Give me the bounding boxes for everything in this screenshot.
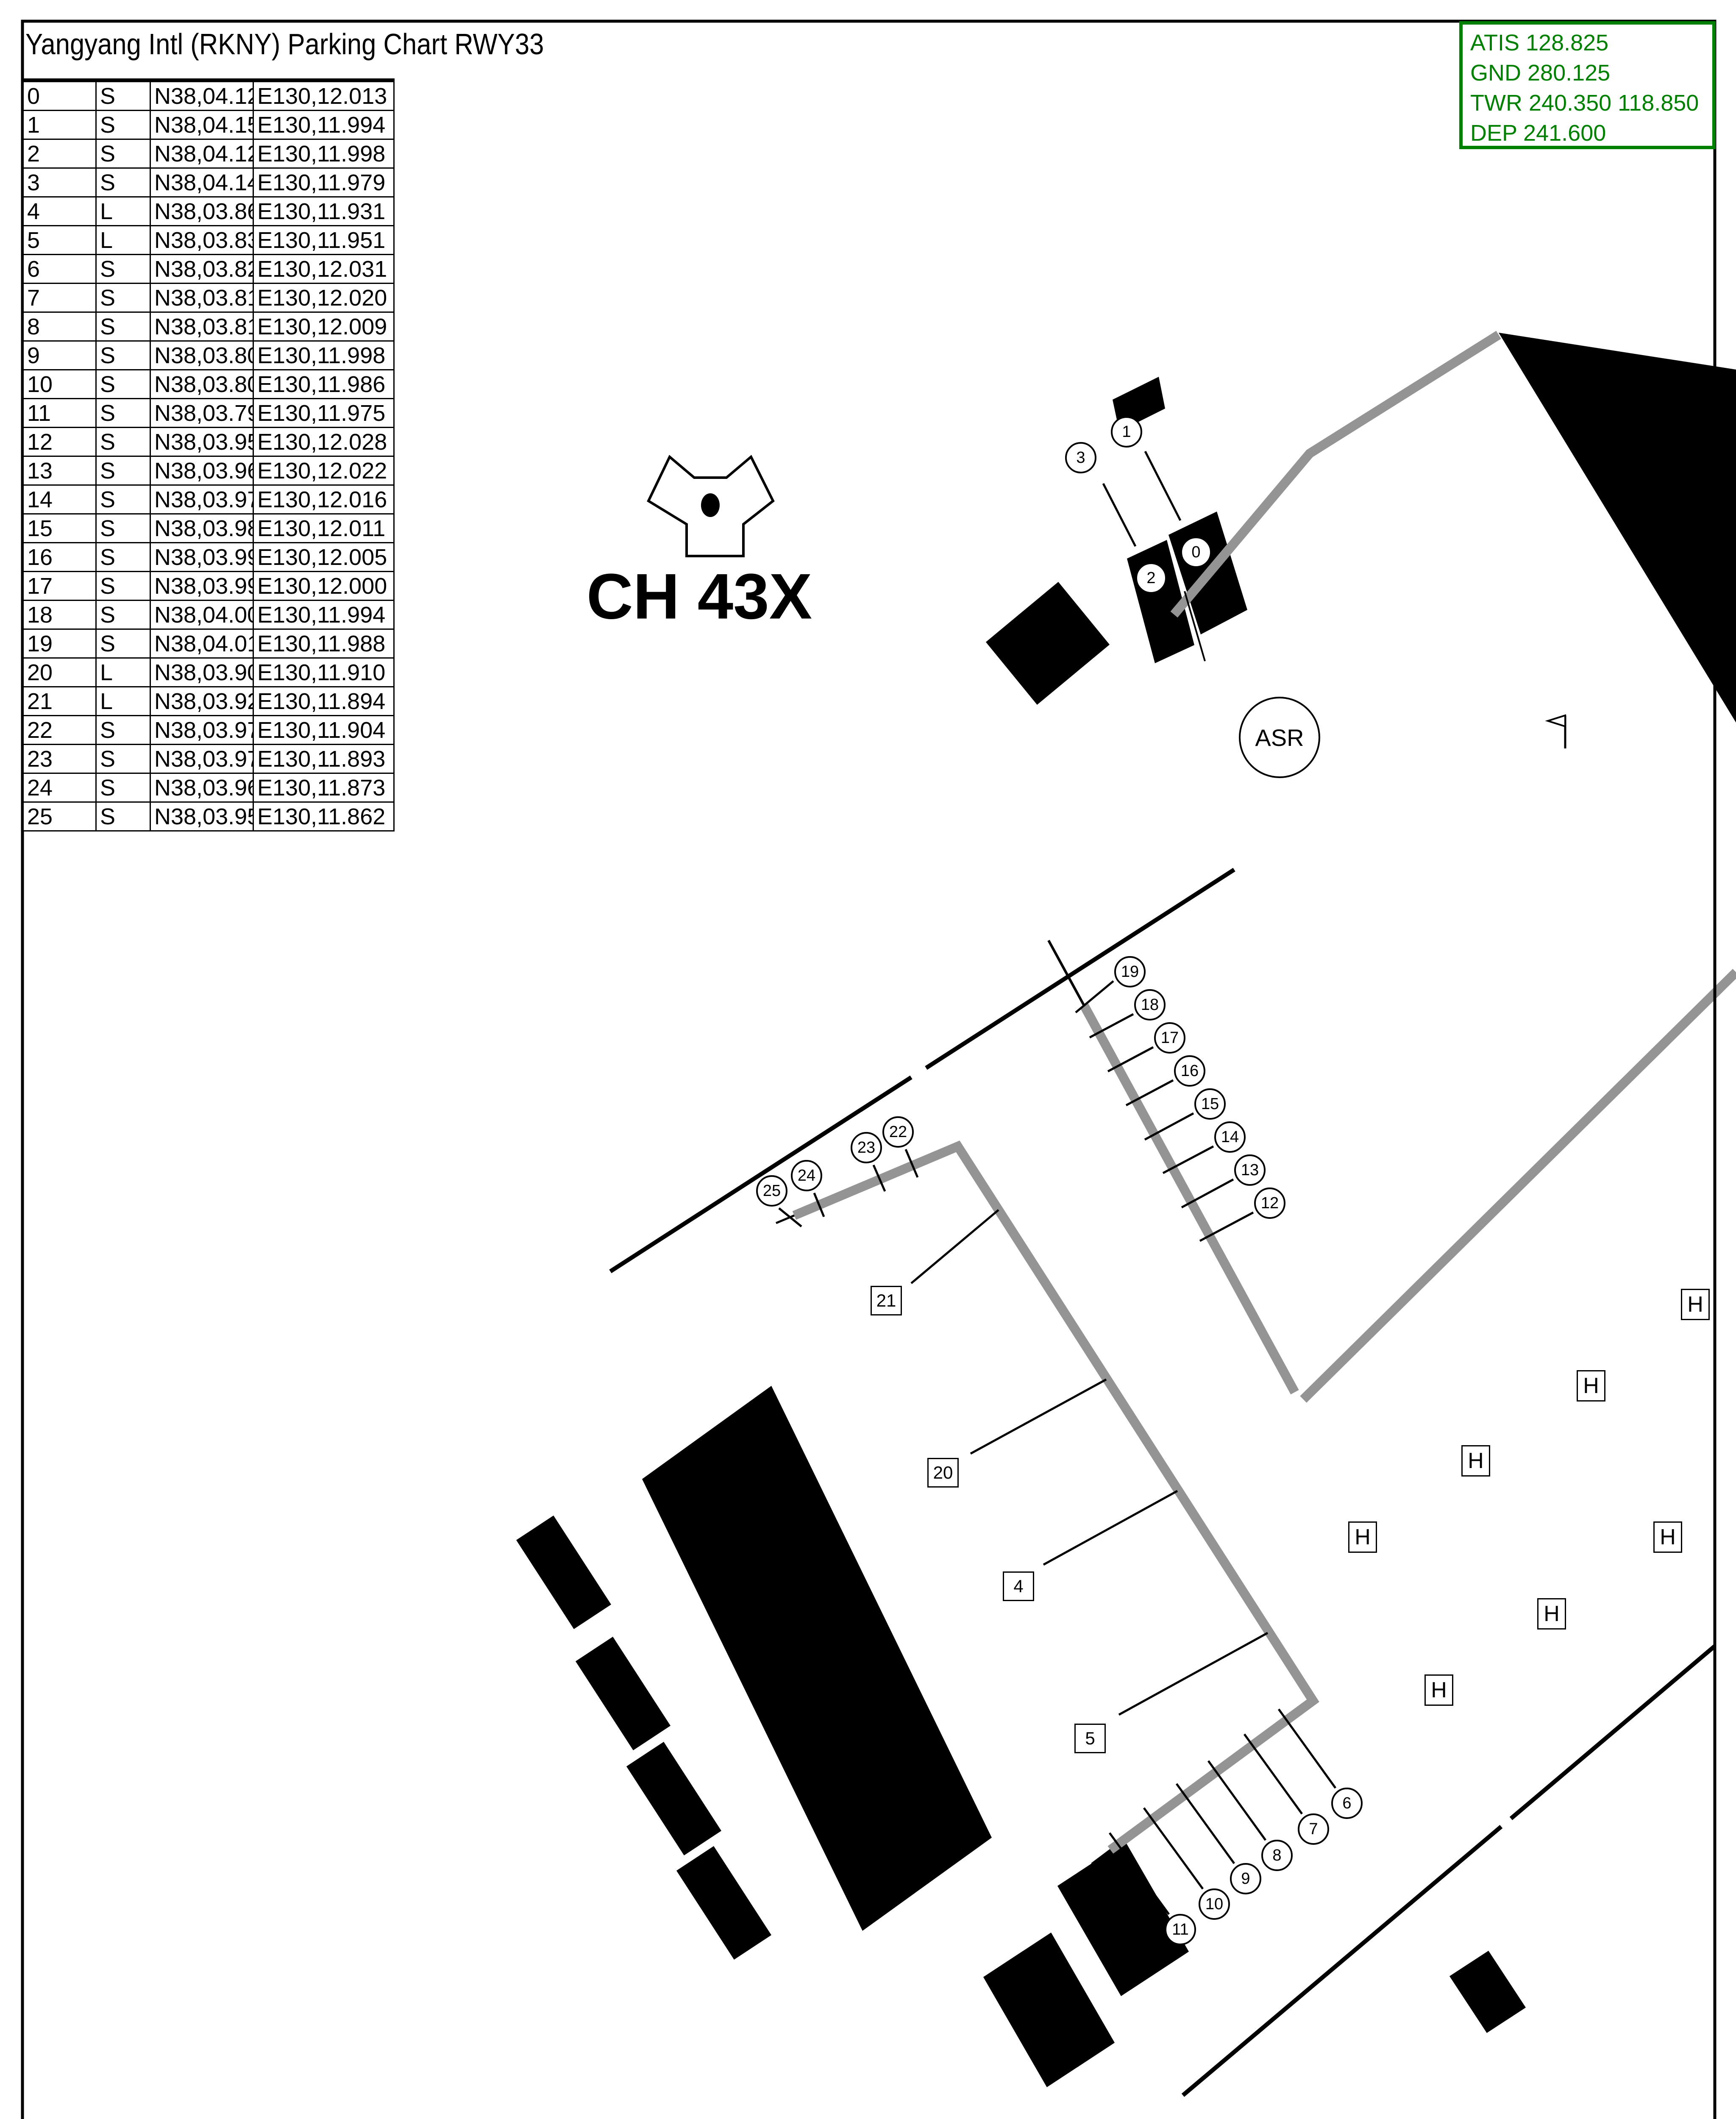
building (516, 1516, 611, 1629)
departure-frequency: DEP 241.600 (1470, 118, 1712, 148)
table-cell: E130,12.000 (253, 572, 394, 601)
table-row: 15SN38,03.982E130,12.011 (23, 514, 394, 543)
table-cell: N38,04.149 (150, 168, 253, 197)
table-cell: N38,04.016 (150, 629, 253, 658)
helipad-marker: H (1653, 1521, 1682, 1553)
table-row: 6SN38,03.823E130,12.031 (23, 255, 394, 284)
table-cell: N38,03.797 (150, 399, 253, 428)
stand-box-21: 21 (871, 1286, 902, 1315)
table-row: 21LN38,03.924E130,11.894 (23, 687, 394, 716)
stand-leader-line (971, 1379, 1106, 1454)
table-row: 3SN38,04.149E130,11.979 (23, 168, 394, 197)
table-cell: E130,11.931 (253, 197, 394, 226)
stand-tick (1208, 1761, 1266, 1840)
table-cell: E130,11.894 (253, 687, 394, 716)
table-row: 16SN38,03.991E130,12.005 (23, 543, 394, 572)
table-cell: E130,11.862 (253, 802, 394, 831)
building (983, 1933, 1115, 2087)
frequency-box: ATIS 128.825 GND 280.125 TWR 240.350 118… (1459, 21, 1716, 149)
table-cell: E130,11.986 (253, 370, 394, 399)
table-cell: N38,03.957 (150, 428, 253, 456)
table-cell: 25 (23, 802, 96, 831)
table-cell: E130,12.022 (253, 456, 394, 485)
table-cell: 3 (23, 168, 96, 197)
table-cell: E130,11.904 (253, 716, 394, 745)
table-cell: E130,11.988 (253, 629, 394, 658)
stand-circle-11: 11 (1165, 1914, 1196, 1945)
table-cell: S (96, 601, 150, 629)
stand-circle-13: 13 (1234, 1154, 1266, 1186)
table-cell: N38,03.978 (150, 716, 253, 745)
tacan-dot (701, 493, 720, 517)
parking-table-body: 0SN38,04.127E130,12.0131SN38,04.156E130,… (23, 81, 394, 831)
table-cell: N38,03.999 (150, 572, 253, 601)
table-cell: S (96, 716, 150, 745)
runway-band (1499, 333, 1736, 723)
table-row: 8SN38,03.812E130,12.009 (23, 312, 394, 341)
table-cell: N38,04.127 (150, 81, 253, 111)
page-title: Yangyang Intl (RKNY) Parking Chart RWY33 (25, 27, 544, 61)
table-cell: S (96, 485, 150, 514)
table-cell: N38,03.964 (150, 773, 253, 802)
table-row: 17SN38,03.999E130,12.000 (23, 572, 394, 601)
table-cell: 22 (23, 716, 96, 745)
stand-circle-24: 24 (791, 1160, 822, 1191)
stand-tick (1076, 981, 1113, 1012)
stand-circle-18: 18 (1134, 989, 1166, 1021)
helipad-marker: H (1681, 1289, 1710, 1320)
table-cell: E130,11.994 (253, 111, 394, 139)
table-row: 22SN38,03.978E130,11.904 (23, 716, 394, 745)
stand-leader-line (1103, 484, 1135, 546)
table-row: 9SN38,03.807E130,11.998 (23, 341, 394, 370)
stand-circle-23: 23 (851, 1132, 882, 1163)
table-cell: E130,11.910 (253, 658, 394, 687)
table-cell: 21 (23, 687, 96, 716)
table-cell: S (96, 456, 150, 485)
table-row: 10SN38,03.802E130,11.986 (23, 370, 394, 399)
taxiway-extension (1049, 940, 1084, 1006)
table-cell: E130,12.020 (253, 284, 394, 312)
table-cell: N38,03.974 (150, 485, 253, 514)
stand-circle-16: 16 (1174, 1055, 1205, 1087)
table-cell: E130,11.951 (253, 226, 394, 255)
table-cell: 11 (23, 399, 96, 428)
stand-tick (1177, 1784, 1234, 1863)
table-cell: S (96, 629, 150, 658)
table-row: 12SN38,03.957E130,12.028 (23, 428, 394, 456)
table-cell: N38,03.900 (150, 658, 253, 687)
table-cell: N38,03.982 (150, 514, 253, 543)
stand-circle-3: 3 (1065, 442, 1096, 473)
table-cell: N38,04.156 (150, 111, 253, 139)
helipad-marker: H (1537, 1598, 1566, 1630)
table-cell: 0 (23, 81, 96, 111)
table-cell: S (96, 168, 150, 197)
table-cell: E130,11.873 (253, 773, 394, 802)
table-cell: N38,03.868 (150, 197, 253, 226)
table-cell: N38,03.991 (150, 543, 253, 572)
table-cell: S (96, 802, 150, 831)
table-cell: L (96, 197, 150, 226)
table-cell: 20 (23, 658, 96, 687)
table-cell: L (96, 658, 150, 687)
table-row: 13SN38,03.966E130,12.022 (23, 456, 394, 485)
stand-circle-15: 15 (1194, 1088, 1226, 1120)
table-cell: N38,04.008 (150, 601, 253, 629)
runway-line (926, 870, 1234, 1068)
building (576, 1637, 670, 1750)
table-cell: N38,04.120 (150, 139, 253, 168)
table-cell: S (96, 81, 150, 111)
stand-circle-1: 1 (1111, 416, 1142, 448)
table-cell: N38,03.966 (150, 456, 253, 485)
table-cell: 8 (23, 312, 96, 341)
stand-circle-9: 9 (1230, 1863, 1261, 1894)
table-row: 0SN38,04.127E130,12.013 (23, 81, 394, 111)
table-cell: N38,03.802 (150, 370, 253, 399)
table-row: 23SN38,03.973E130,11.893 (23, 745, 394, 773)
table-cell: 1 (23, 111, 96, 139)
helipad-marker: H (1461, 1445, 1490, 1477)
stand-circle-10: 10 (1199, 1888, 1230, 1920)
tower-frequency: TWR 240.350 118.850 (1470, 88, 1712, 118)
table-cell: E130,12.013 (253, 81, 394, 111)
table-row: 20LN38,03.900E130,11.910 (23, 658, 394, 687)
table-cell: 9 (23, 341, 96, 370)
table-cell: N38,03.807 (150, 341, 253, 370)
table-cell: S (96, 284, 150, 312)
table-row: 1SN38,04.156E130,11.994 (23, 111, 394, 139)
stand-circle-12: 12 (1254, 1187, 1285, 1219)
table-cell: 5 (23, 226, 96, 255)
table-row: 25SN38,03.959E130,11.862 (23, 802, 394, 831)
stand-box-4: 4 (1003, 1571, 1034, 1601)
stand-circle-19: 19 (1114, 956, 1146, 987)
flag-pennant-icon (1548, 715, 1565, 726)
stand-leader-line (1043, 1491, 1177, 1565)
table-cell: E130,11.979 (253, 168, 394, 197)
table-cell: E130,11.998 (253, 341, 394, 370)
table-cell: S (96, 745, 150, 773)
stand-tick (1244, 1734, 1302, 1814)
stand-circle-6: 6 (1331, 1788, 1363, 1819)
table-cell: N38,03.973 (150, 745, 253, 773)
table-cell: E130,12.005 (253, 543, 394, 572)
table-cell: 14 (23, 485, 96, 514)
table-cell: S (96, 773, 150, 802)
table-cell: 16 (23, 543, 96, 572)
table-cell: S (96, 399, 150, 428)
helipad-marker: H (1424, 1674, 1453, 1706)
helipad-marker: H (1348, 1521, 1377, 1553)
table-cell: E130,12.031 (253, 255, 394, 284)
building (986, 582, 1110, 705)
table-cell: 10 (23, 370, 96, 399)
parking-table: 0SN38,04.127E130,12.0131SN38,04.156E130,… (22, 78, 395, 831)
stand-circle-7: 7 (1298, 1813, 1329, 1845)
table-cell: 12 (23, 428, 96, 456)
table-row: 14SN38,03.974E130,12.016 (23, 485, 394, 514)
stand-leader-line (1119, 1633, 1268, 1715)
table-row: 4LN38,03.868E130,11.931 (23, 197, 394, 226)
table-row: 24SN38,03.964E130,11.873 (23, 773, 394, 802)
table-cell: N38,03.812 (150, 312, 253, 341)
table-cell: N38,03.818 (150, 284, 253, 312)
table-cell: E130,11.998 (253, 139, 394, 168)
table-cell: S (96, 312, 150, 341)
stand-leader-line (1145, 451, 1180, 520)
table-cell: 6 (23, 255, 96, 284)
stand-circle-17: 17 (1154, 1022, 1185, 1054)
table-row: 5LN38,03.838E130,11.951 (23, 226, 394, 255)
table-row: 18SN38,04.008E130,11.994 (23, 601, 394, 629)
table-cell: 18 (23, 601, 96, 629)
ground-frequency: GND 280.125 (1470, 58, 1712, 88)
building (626, 1742, 721, 1855)
building (1449, 1951, 1526, 2033)
stand-box-5: 5 (1074, 1724, 1106, 1753)
table-row: 11SN38,03.797E130,11.975 (23, 399, 394, 428)
table-cell: N38,03.959 (150, 802, 253, 831)
table-cell: 13 (23, 456, 96, 485)
table-cell: E130,12.009 (253, 312, 394, 341)
table-cell: 7 (23, 284, 96, 312)
table-cell: E130,11.975 (253, 399, 394, 428)
table-cell: S (96, 341, 150, 370)
table-cell: 2 (23, 139, 96, 168)
stand-circle-2: 2 (1135, 562, 1167, 594)
table-cell: S (96, 514, 150, 543)
stand-tick (1279, 1709, 1335, 1788)
stand-circle-22: 22 (882, 1116, 914, 1148)
table-cell: N38,03.823 (150, 255, 253, 284)
parking-chart-page: Yangyang Intl (RKNY) Parking Chart RWY33… (0, 0, 1736, 2119)
table-cell: S (96, 543, 150, 572)
table-row: 19SN38,04.016E130,11.988 (23, 629, 394, 658)
building (676, 1846, 771, 1960)
table-cell: E130,11.994 (253, 601, 394, 629)
table-cell: N38,03.838 (150, 226, 253, 255)
table-cell: S (96, 428, 150, 456)
table-cell: 19 (23, 629, 96, 658)
stand-circle-8: 8 (1261, 1840, 1293, 1871)
asr-circle: ASR (1239, 697, 1320, 778)
helipad-marker: H (1577, 1370, 1605, 1402)
table-cell: L (96, 687, 150, 716)
table-cell: L (96, 226, 150, 255)
table-cell: S (96, 255, 150, 284)
stand-leader-line (911, 1210, 999, 1283)
table-cell: 17 (23, 572, 96, 601)
runway-line (610, 1077, 911, 1271)
table-cell: E130,12.016 (253, 485, 394, 514)
atis-frequency: ATIS 128.825 (1470, 28, 1712, 58)
stand-circle-14: 14 (1214, 1121, 1246, 1153)
table-cell: 23 (23, 745, 96, 773)
boundary-line (1511, 1646, 1715, 1819)
table-cell: 24 (23, 773, 96, 802)
stand-tick (1144, 1808, 1203, 1889)
taxiway (1303, 972, 1736, 1399)
table-cell: S (96, 572, 150, 601)
table-cell: S (96, 139, 150, 168)
table-cell: S (96, 111, 150, 139)
stand-circle-25: 25 (756, 1175, 787, 1207)
table-cell: 15 (23, 514, 96, 543)
table-cell: E130,11.893 (253, 745, 394, 773)
tacan-channel-label: CH 43X (587, 560, 812, 634)
boundary-line (1183, 1827, 1501, 2095)
stand-circle-0: 0 (1180, 537, 1212, 568)
table-cell: N38,03.924 (150, 687, 253, 716)
stand-box-20: 20 (927, 1458, 959, 1488)
table-cell: S (96, 370, 150, 399)
table-row: 2SN38,04.120E130,11.998 (23, 139, 394, 168)
table-row: 7SN38,03.818E130,12.020 (23, 284, 394, 312)
table-cell: E130,12.028 (253, 428, 394, 456)
table-cell: 4 (23, 197, 96, 226)
table-cell: E130,12.011 (253, 514, 394, 543)
